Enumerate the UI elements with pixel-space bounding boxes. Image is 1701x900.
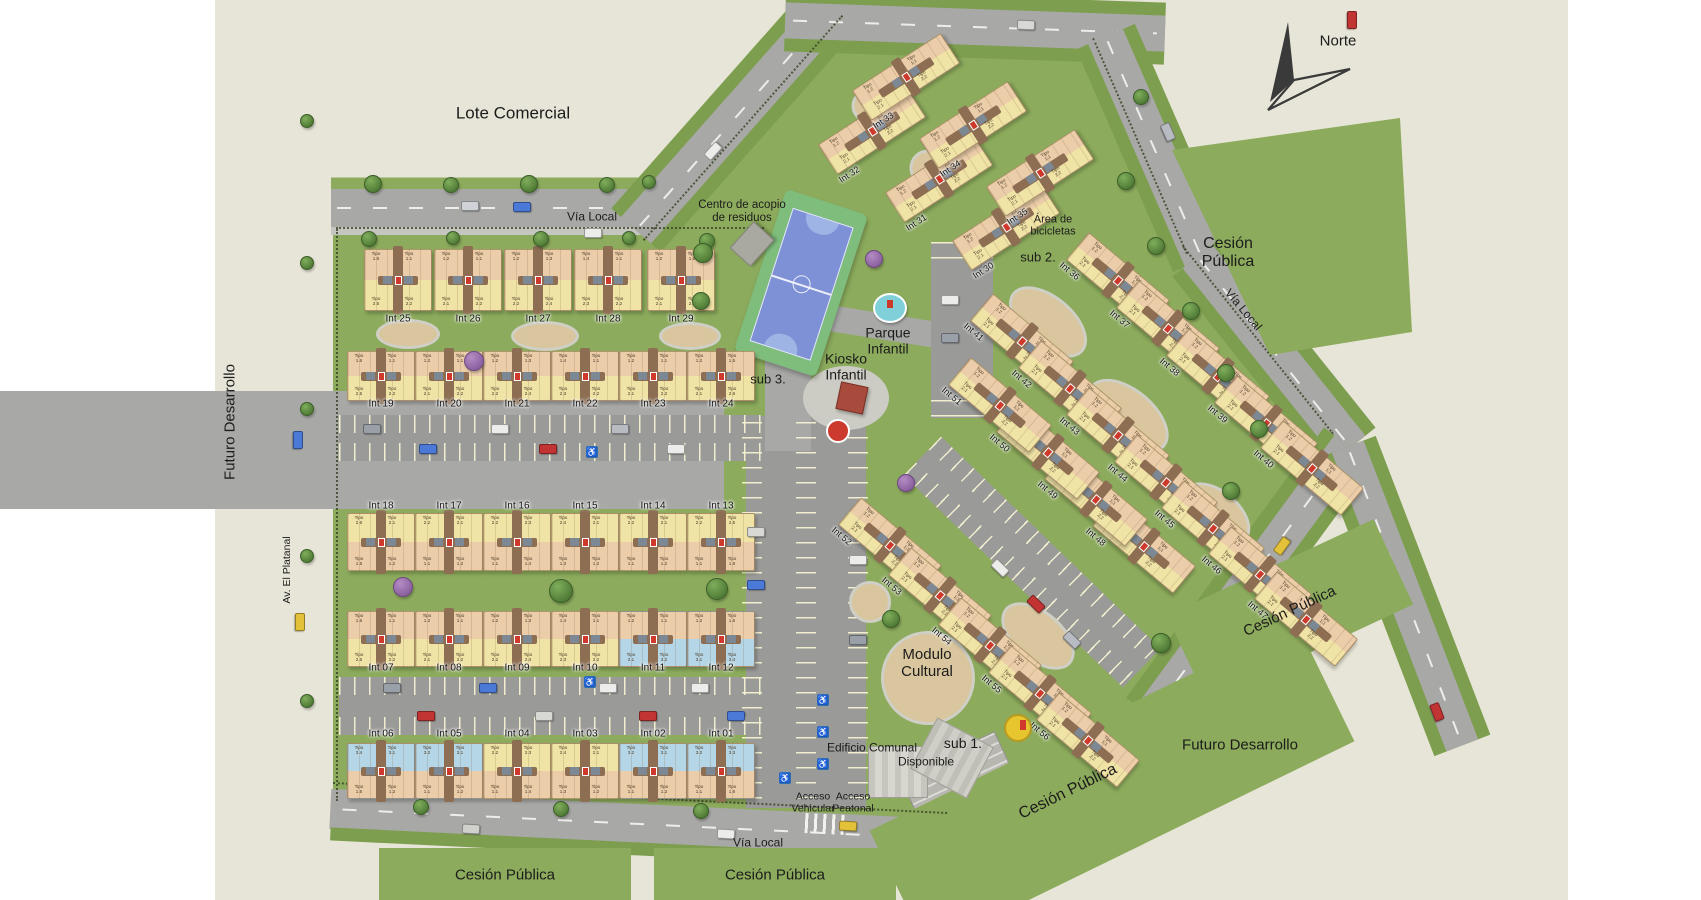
handicap-icon: ♿ — [584, 676, 596, 688]
int-label: Int 06 — [368, 729, 393, 740]
int-label: Int 27 — [525, 314, 550, 325]
label-via-local-sur: Vía Local — [733, 836, 783, 849]
int-label: Int 07 — [368, 663, 393, 674]
label-sub-2: sub 2. — [1020, 251, 1055, 266]
handicap-icon: ♿ — [817, 726, 829, 738]
int-label: Int 02 — [640, 729, 665, 740]
int-label: Int 13 — [708, 501, 733, 512]
int-label: Int 20 — [436, 399, 461, 410]
label-disponible: Disponible — [898, 755, 954, 768]
label-centro-acopio: Centro de acopio de residuos — [698, 199, 786, 225]
int-label: Int 16 — [504, 501, 529, 512]
int-label: Int 23 — [640, 399, 665, 410]
int-label: Int 05 — [436, 729, 461, 740]
master-plan-map: Tipo 1.6Tipo 1.1Tipo 2.5Tipo 2.2Int 25Ti… — [0, 0, 1701, 900]
label-sub-1: sub 1. — [944, 736, 982, 752]
label-kiosko-infantil: Kiosko Infantil — [825, 351, 867, 382]
label-lote-comercial: Lote Comercial — [456, 103, 570, 122]
label-parque-infantil: Parque Infantil — [865, 325, 910, 356]
label-via-local-norte: Vía Local — [567, 210, 617, 223]
labels-layer: Lote Comercial Futuro Desarrollo Av. El … — [0, 0, 1701, 900]
label-edificio-comunal: Edificio Comunal — [827, 741, 917, 754]
label-cesion-publica-centro: Cesión Pública — [1241, 583, 1339, 641]
int-label: Int 14 — [640, 501, 665, 512]
int-label: Int 28 — [595, 314, 620, 325]
north-arrow-icon — [1248, 12, 1358, 112]
int-label: Int 24 — [708, 399, 733, 410]
label-cesion-publica-este: Cesión Pública — [1202, 235, 1254, 271]
int-label: Int 29 — [668, 314, 693, 325]
label-cesion-publica-sur-grande: Cesión Pública — [1016, 761, 1120, 824]
label-cesion-publica-sur-2: Cesión Pública — [725, 868, 825, 885]
int-label: Int 18 — [368, 501, 393, 512]
int-label: Int 25 — [385, 314, 410, 325]
int-label: Int 08 — [436, 663, 461, 674]
int-label: Int 03 — [572, 729, 597, 740]
int-label: Int 04 — [504, 729, 529, 740]
int-label: Int 12 — [708, 663, 733, 674]
int-label: Int 10 — [572, 663, 597, 674]
handicap-icon: ♿ — [817, 694, 829, 706]
int-label: Int 17 — [436, 501, 461, 512]
handicap-icon: ♿ — [586, 446, 598, 458]
int-label: Int 22 — [572, 399, 597, 410]
label-cesion-publica-sur-1: Cesión Pública — [455, 868, 555, 885]
int-label: Int 11 — [641, 663, 665, 674]
int-label: Int 21 — [504, 399, 529, 410]
int-label: Int 01 — [708, 729, 733, 740]
int-label: Int 09 — [504, 663, 529, 674]
label-futuro-desarrollo-sureste: Futuro Desarrollo — [1182, 738, 1298, 755]
label-acceso-peatonal: Acceso Peatonal — [832, 791, 873, 815]
handicap-icon: ♿ — [817, 758, 829, 770]
label-via-local-noreste: Vía Local — [1222, 287, 1264, 334]
handicap-icon: ♿ — [779, 772, 791, 784]
label-av-el-platanal: Av. El Platanal — [282, 536, 294, 603]
int-label: Int 19 — [368, 399, 393, 410]
int-label: Int 26 — [455, 314, 480, 325]
label-modulo-cultural: Modulo Cultural — [901, 647, 953, 681]
label-area-bicicletas: Área de bicicletas — [1030, 214, 1075, 239]
int-label: Int 15 — [572, 501, 597, 512]
label-futuro-desarrollo-oeste: Futuro Desarrollo — [223, 364, 240, 480]
label-acceso-vehicular: Acceso Vehicular — [791, 791, 834, 815]
label-sub-3: sub 3. — [750, 373, 785, 388]
